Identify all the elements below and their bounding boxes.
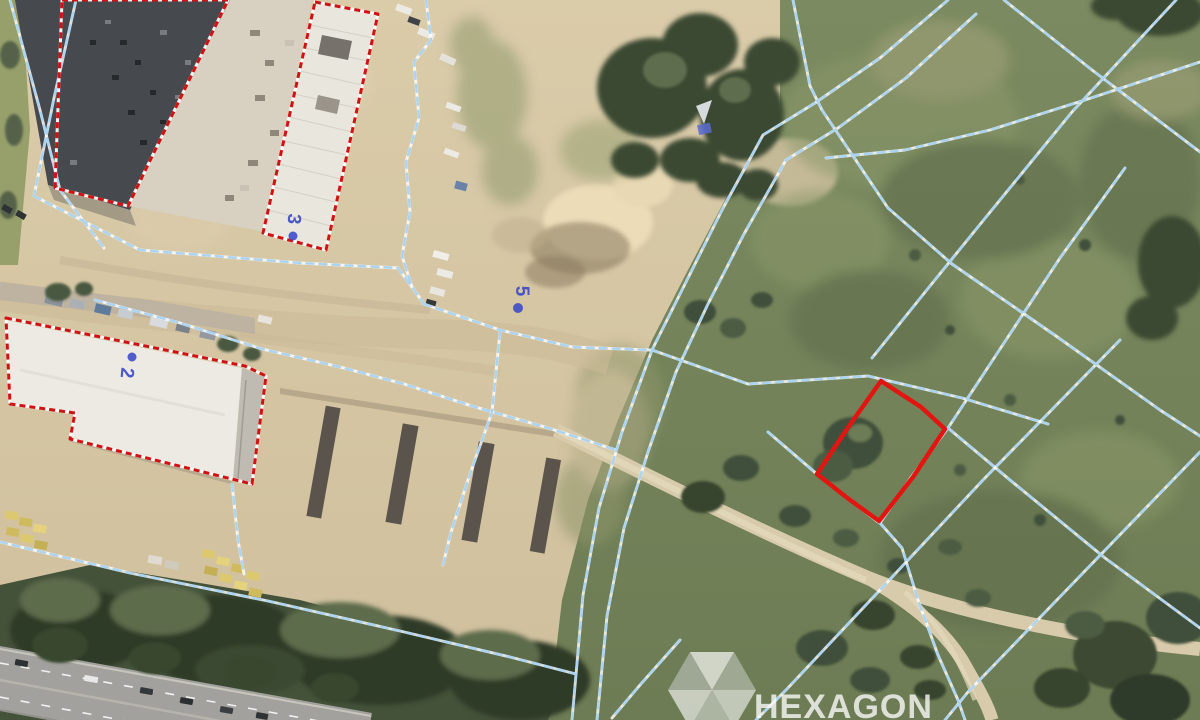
aerial-map-canvas[interactable]: 2 3 5 HEXAGON xyxy=(0,0,1200,720)
marker-label: 2 xyxy=(116,367,138,379)
marker-dot[interactable] xyxy=(513,303,523,313)
aerial-map-view[interactable]: 2 3 5 HEXAGON xyxy=(0,0,1200,720)
marker-dot[interactable] xyxy=(128,353,137,362)
watermark-brand-text: HEXAGON xyxy=(754,688,933,720)
marker-label: 5 xyxy=(511,286,532,297)
marker-label: 3 xyxy=(283,213,305,225)
marker-dot[interactable] xyxy=(289,232,298,241)
